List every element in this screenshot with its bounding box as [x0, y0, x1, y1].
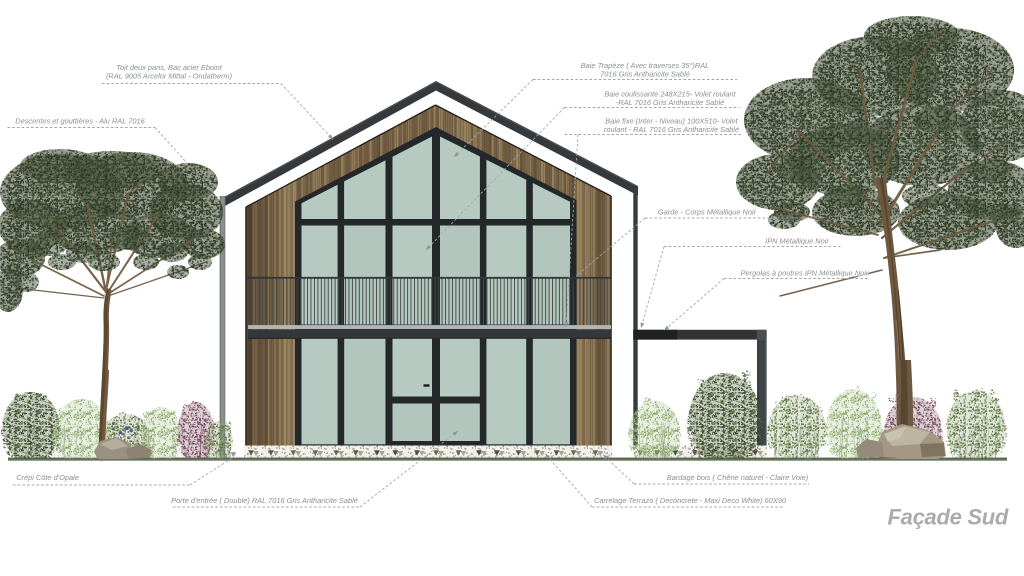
svg-text:Crépi Côte d'Opale: Crépi Côte d'Opale [16, 473, 79, 482]
svg-text:Carrelage Terrazo ( Deconcrete: Carrelage Terrazo ( Deconcrete - Maxi De… [594, 496, 787, 505]
svg-text:Bardage bois ( Chêne naturel -: Bardage bois ( Chêne naturel - Claire Vo… [667, 473, 809, 482]
svg-text:Descentes et gouttières - Alu: Descentes et gouttières - Alu RAL 7016 [15, 117, 145, 126]
svg-text:Façade Sud: Façade Sud [888, 505, 1009, 530]
svg-text:Garde - Corps Métallique Noir: Garde - Corps Métallique Noir [658, 208, 757, 217]
svg-text:7016 Gris Antharicite Sablé: 7016 Gris Antharicite Sablé [600, 70, 690, 79]
svg-text:-RAL 7016 Gris Antharicite Sab: -RAL 7016 Gris Antharicite Sablé [616, 98, 724, 107]
svg-text:roulant - RAL 7016 Gris Anthar: roulant - RAL 7016 Gris Antharicite Sabl… [604, 125, 739, 134]
svg-text:Porte d'entrée ( Double) RAL 7: Porte d'entrée ( Double) RAL 7016 Gris A… [171, 496, 358, 505]
svg-text:IPN Métallique Noir: IPN Métallique Noir [765, 237, 829, 246]
svg-text:(RAL 9005 Arcelor Mittal - On: (RAL 9005 Arcelor Mittal - Ondatherm) [106, 72, 233, 81]
svg-text:Pergolas à poutres IPN Métalli: Pergolas à poutres IPN Métallique Noir [741, 269, 869, 278]
